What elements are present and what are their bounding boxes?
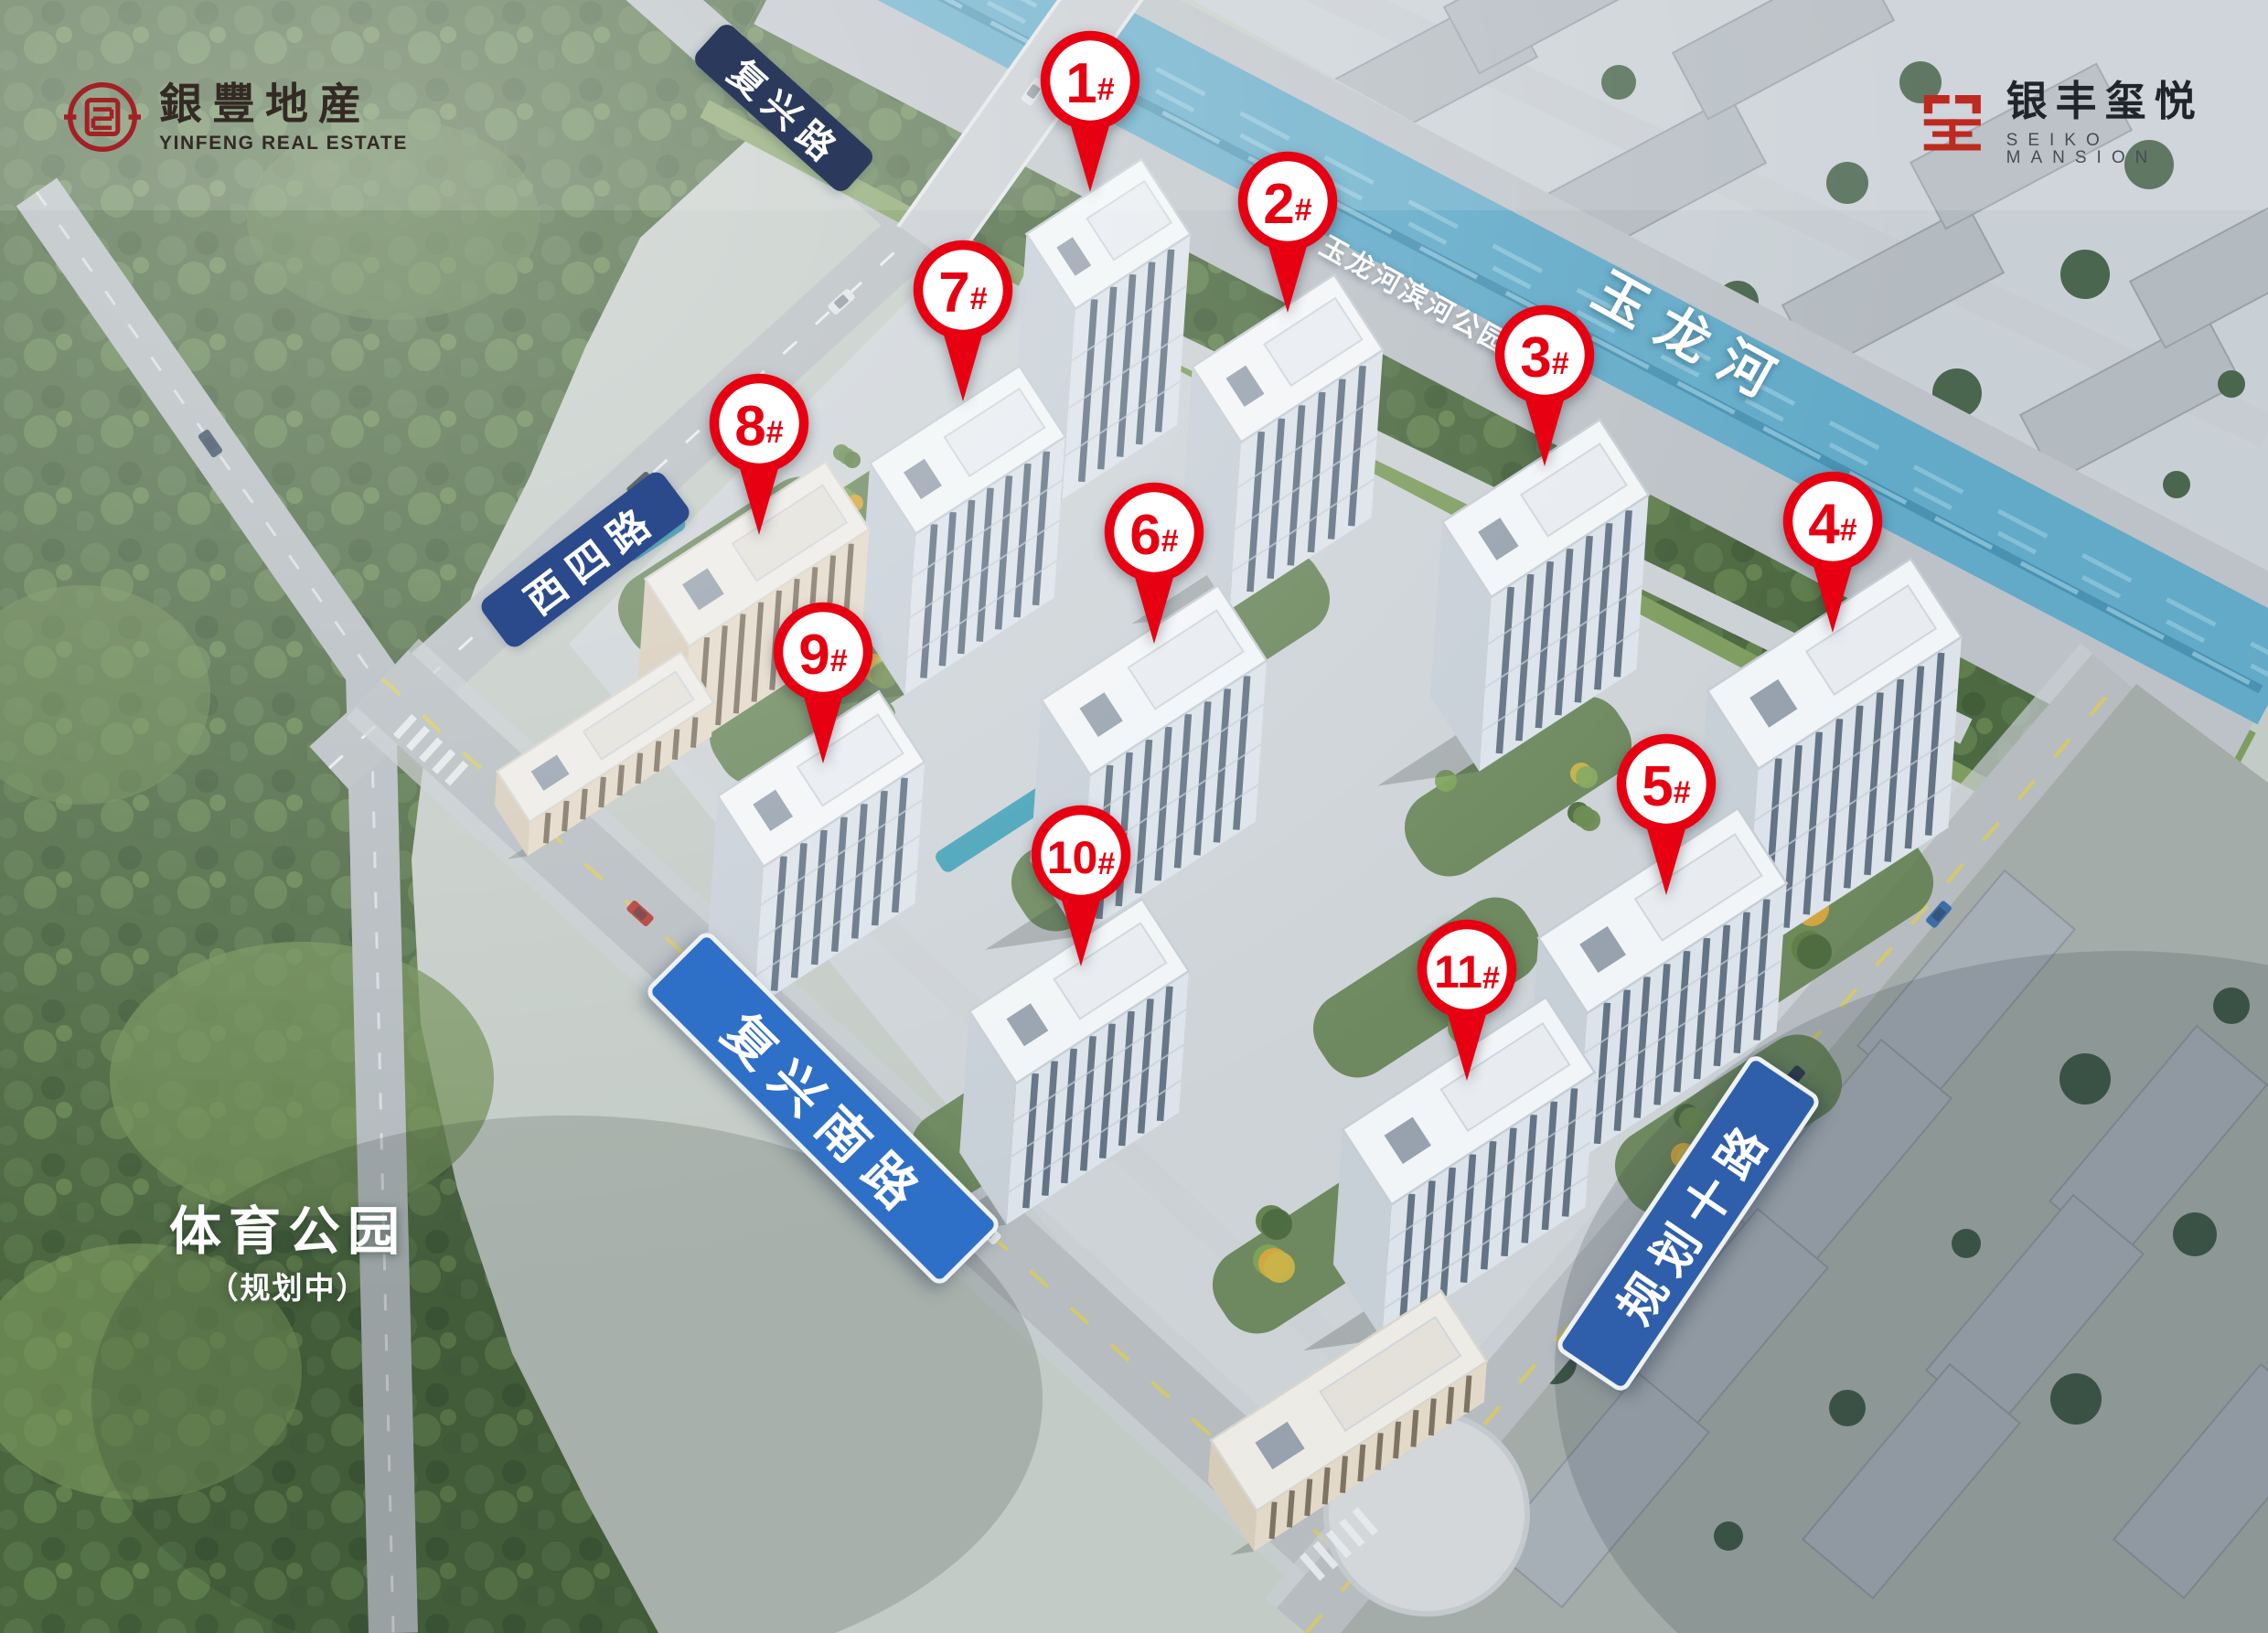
marker-building-8[interactable]: 8# xyxy=(704,370,814,544)
developer-logo: 銀豐地産 YINFENG REAL ESTATE xyxy=(64,79,408,155)
marker-building-4[interactable]: 4# xyxy=(1778,468,1888,642)
marker-building-2[interactable]: 2# xyxy=(1233,148,1343,322)
marker-building-5[interactable]: 5# xyxy=(1611,731,1721,904)
seiko-mansion-seal-icon xyxy=(1917,87,1988,160)
yinfeng-seal-icon xyxy=(64,79,141,155)
developer-name-cn: 銀豐地産 xyxy=(159,82,408,125)
marker-building-7[interactable]: 7# xyxy=(908,237,1018,411)
marker-building-9[interactable]: 9# xyxy=(768,599,878,773)
developer-name-en: YINFENG REAL ESTATE xyxy=(159,133,408,153)
project-name-en: SEIKO MANSION xyxy=(2006,132,2268,166)
sports-park-name: 体育公园 xyxy=(169,1206,407,1258)
marker-building-10[interactable]: 10# xyxy=(1026,802,1136,976)
marker-building-3[interactable]: 3# xyxy=(1490,302,1599,475)
site-plan-rendering: 銀豐地産 YINFENG REAL ESTATE 银丰玺悦 SEIKO MANS… xyxy=(0,0,2268,1633)
sports-park-label: 体育公园 （规划中） xyxy=(169,1206,407,1303)
sports-park-status: （规划中） xyxy=(169,1273,407,1303)
project-logo: 银丰玺悦 SEIKO MANSION xyxy=(1917,80,2268,166)
marker-building-1[interactable]: 1# xyxy=(1035,27,1145,201)
marker-building-6[interactable]: 6# xyxy=(1099,479,1209,653)
project-name-cn: 银丰玺悦 xyxy=(2006,80,2268,122)
marker-building-11[interactable]: 11# xyxy=(1412,916,1522,1090)
